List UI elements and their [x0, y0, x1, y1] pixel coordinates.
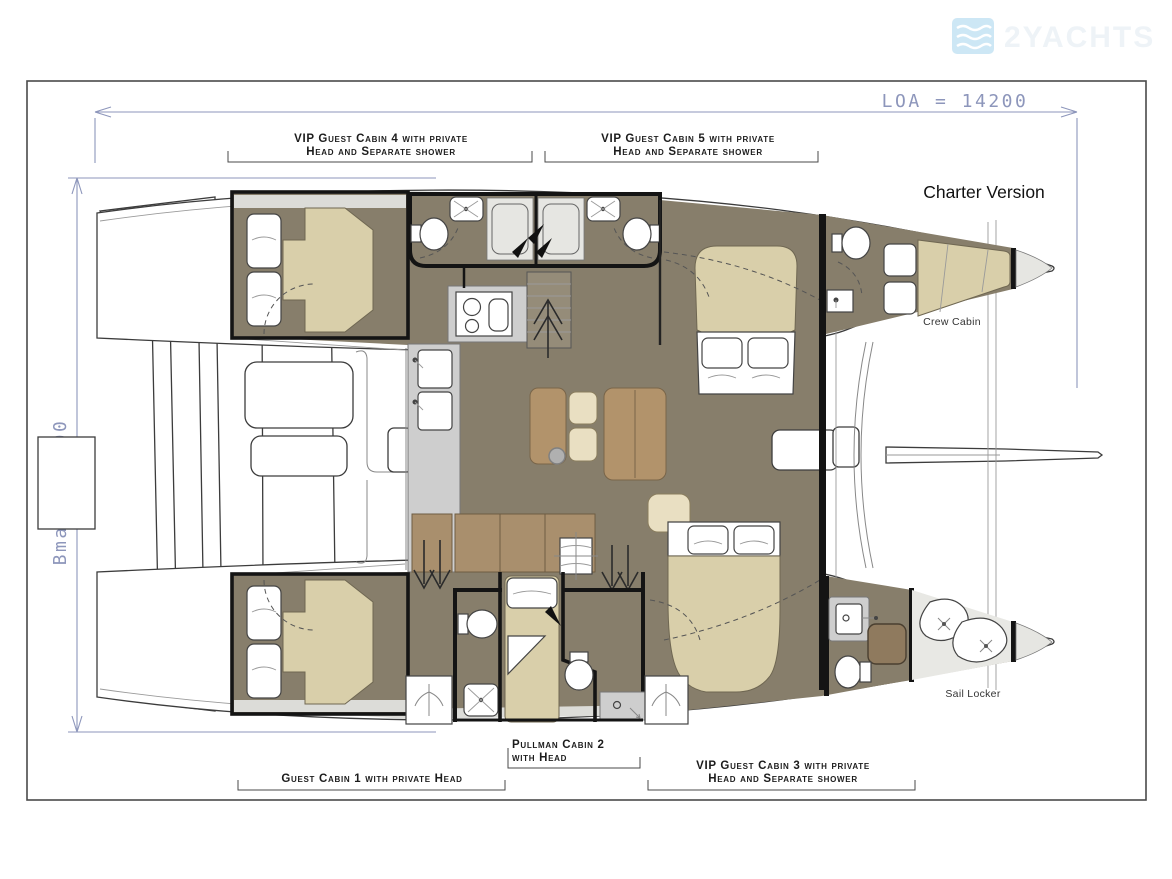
vip4-pillow — [247, 272, 281, 326]
salon-stool — [569, 392, 597, 424]
guest1-pillow — [247, 644, 281, 698]
cockpit-bench — [251, 436, 347, 476]
vip3-pillow — [734, 526, 774, 554]
pullman2-label-line2: with Head — [512, 752, 567, 764]
guest1-label-line1: Guest Cabin 1 with private Head — [281, 773, 462, 785]
guest-cabin-1 — [232, 574, 408, 714]
loa-dimension-text: LOA = 14200 — [882, 91, 1029, 112]
stairs-up — [527, 272, 571, 358]
crew-cabin-label: Crew Cabin — [923, 316, 981, 328]
cockpit-table — [245, 362, 353, 428]
crew-locker — [827, 290, 853, 312]
vip4-label-line1: VIP Guest Cabin 4 with private — [294, 133, 468, 145]
vip5-label-line1: VIP Guest Cabin 5 with private — [601, 133, 775, 145]
deck-plan-drawing: 2YACHTS LOA = 14200 Bmax = 8000 — [0, 0, 1172, 879]
vip3-bed — [668, 556, 780, 692]
vip3-label-line1: VIP Guest Cabin 3 with private — [696, 760, 870, 772]
salon-hatch — [554, 532, 598, 580]
vip4-pillow — [247, 214, 281, 268]
galley-sink — [418, 350, 452, 388]
vip3-shower-pan — [868, 624, 906, 664]
galley-sink — [418, 392, 452, 430]
deck-plan-page: 2YACHTS LOA = 14200 Bmax = 8000 — [0, 0, 1172, 879]
vip5-label-line2: Head and Separate shower — [613, 146, 763, 158]
compression-post — [549, 448, 565, 464]
vip3-head — [824, 576, 914, 696]
pullman-pillow — [507, 578, 557, 608]
vip3-label-line2: Head and Separate shower — [708, 773, 858, 785]
vip3-pillow — [688, 526, 728, 554]
pullman-toilet — [458, 610, 497, 638]
guest1-pillow — [247, 586, 281, 640]
vip4-label-line2: Head and Separate shower — [306, 146, 456, 158]
vip5-pillow — [748, 338, 788, 368]
charter-version-label: Charter Version — [923, 182, 1045, 202]
watermark: 2YACHTS — [952, 18, 1155, 54]
watermark-text: 2YACHTS — [1004, 21, 1155, 54]
vip-cabin-4 — [232, 192, 408, 338]
sail-locker-label: Sail Locker — [945, 688, 1000, 700]
swim-ladder-platform — [38, 437, 95, 529]
crew-pillow — [884, 244, 916, 276]
forward-seat — [772, 430, 838, 470]
guest-heads-block — [410, 194, 660, 266]
crew-pillow — [884, 282, 916, 314]
pullman2-label-line1: Pullman Cabin 2 — [512, 739, 605, 751]
salon-stool — [569, 428, 597, 461]
vip5-pillow — [702, 338, 742, 368]
